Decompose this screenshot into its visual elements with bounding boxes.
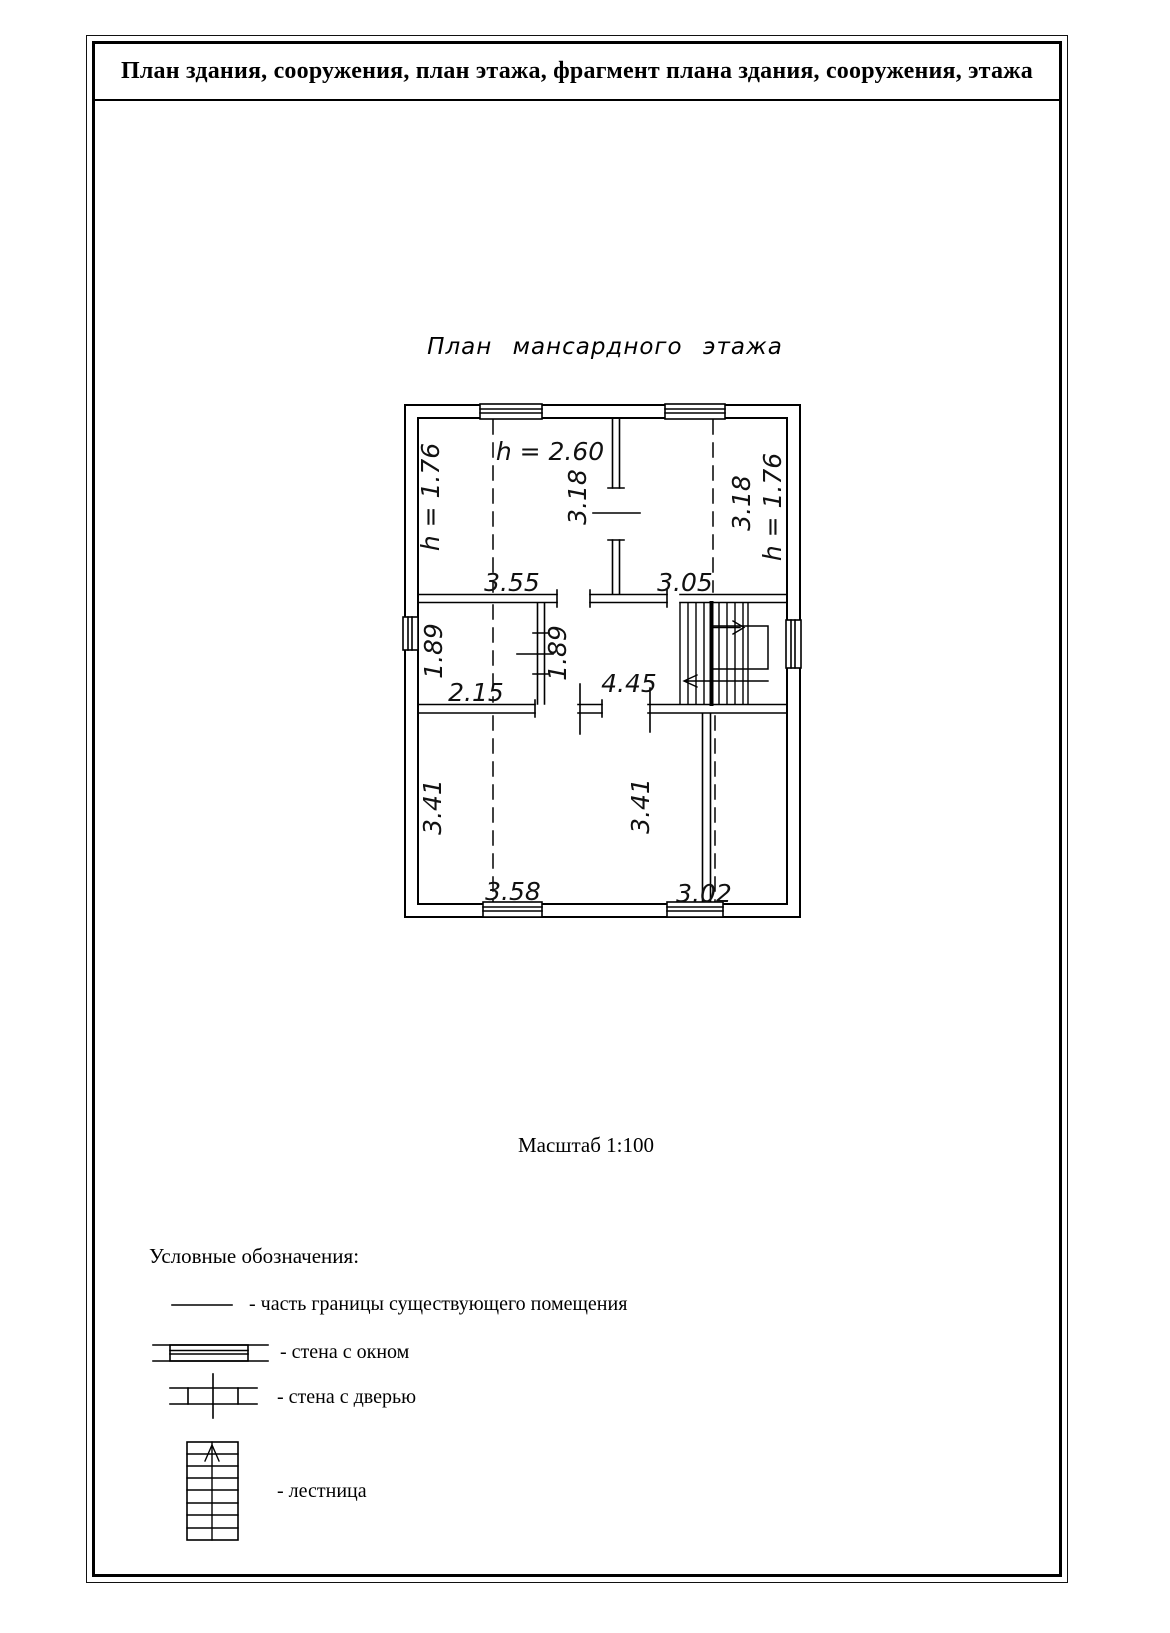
dim-h176-right: h = 1.76 xyxy=(758,453,787,561)
legend-item-label: - часть границы существующего помещения xyxy=(249,1293,627,1316)
dim-445: 4.45 xyxy=(601,669,657,698)
dim-h176-left: h = 1.76 xyxy=(416,443,445,551)
dim-h260: h = 2.60 xyxy=(496,437,604,466)
title-band: План здания, сооружения, план этажа, фра… xyxy=(95,44,1059,101)
staircase xyxy=(680,603,768,704)
dim-341-right: 3.41 xyxy=(626,778,655,834)
dim-358: 3.58 xyxy=(485,877,541,906)
window-symbol-left xyxy=(403,617,418,650)
floor-plan: h = 1.76 h = 2.60 3.18 3.18 h = 1.76 3.5… xyxy=(398,398,810,924)
window-wall-symbol xyxy=(153,1345,268,1361)
dim-341-left: 3.41 xyxy=(418,779,447,835)
legend-item-label: - стена с окном xyxy=(280,1341,409,1364)
legend-item-label: - стена с дверью xyxy=(277,1386,416,1409)
window-symbol-right xyxy=(786,620,801,668)
legend-symbols xyxy=(138,1290,462,1552)
door-wall-symbol xyxy=(170,1374,257,1418)
dim-215: 2.15 xyxy=(448,678,504,707)
scale-note: Масштаб 1:100 xyxy=(286,1133,886,1158)
page: { "page": { "title": "План здания, соору… xyxy=(0,0,1170,1633)
wall-bottom-middle xyxy=(703,714,711,903)
dim-305: 3.05 xyxy=(657,568,713,597)
sheet-title: План здания, сооружения, план этажа, фра… xyxy=(121,58,1033,85)
wall-a xyxy=(418,590,787,607)
dim-189-left: 1.89 xyxy=(419,623,448,679)
stairs-symbol xyxy=(187,1442,238,1540)
legend-item-label: - лестница xyxy=(277,1480,367,1503)
dim-318-right: 3.18 xyxy=(727,475,756,531)
legend-heading: Условные обозначения: xyxy=(149,1244,359,1269)
window-symbol-top-left xyxy=(480,404,542,419)
dim-302: 3.02 xyxy=(676,879,732,908)
dim-189-center: 1.89 xyxy=(543,625,572,681)
existing-boundary-dashed-lines xyxy=(493,420,715,902)
dimension-labels: h = 1.76 h = 2.60 3.18 3.18 h = 1.76 3.5… xyxy=(416,437,787,908)
plan-caption: План мансардного этажа xyxy=(400,334,810,360)
window-symbol-top-right xyxy=(665,404,725,419)
dim-318-left: 3.18 xyxy=(563,469,592,525)
dim-355: 3.55 xyxy=(484,568,540,597)
